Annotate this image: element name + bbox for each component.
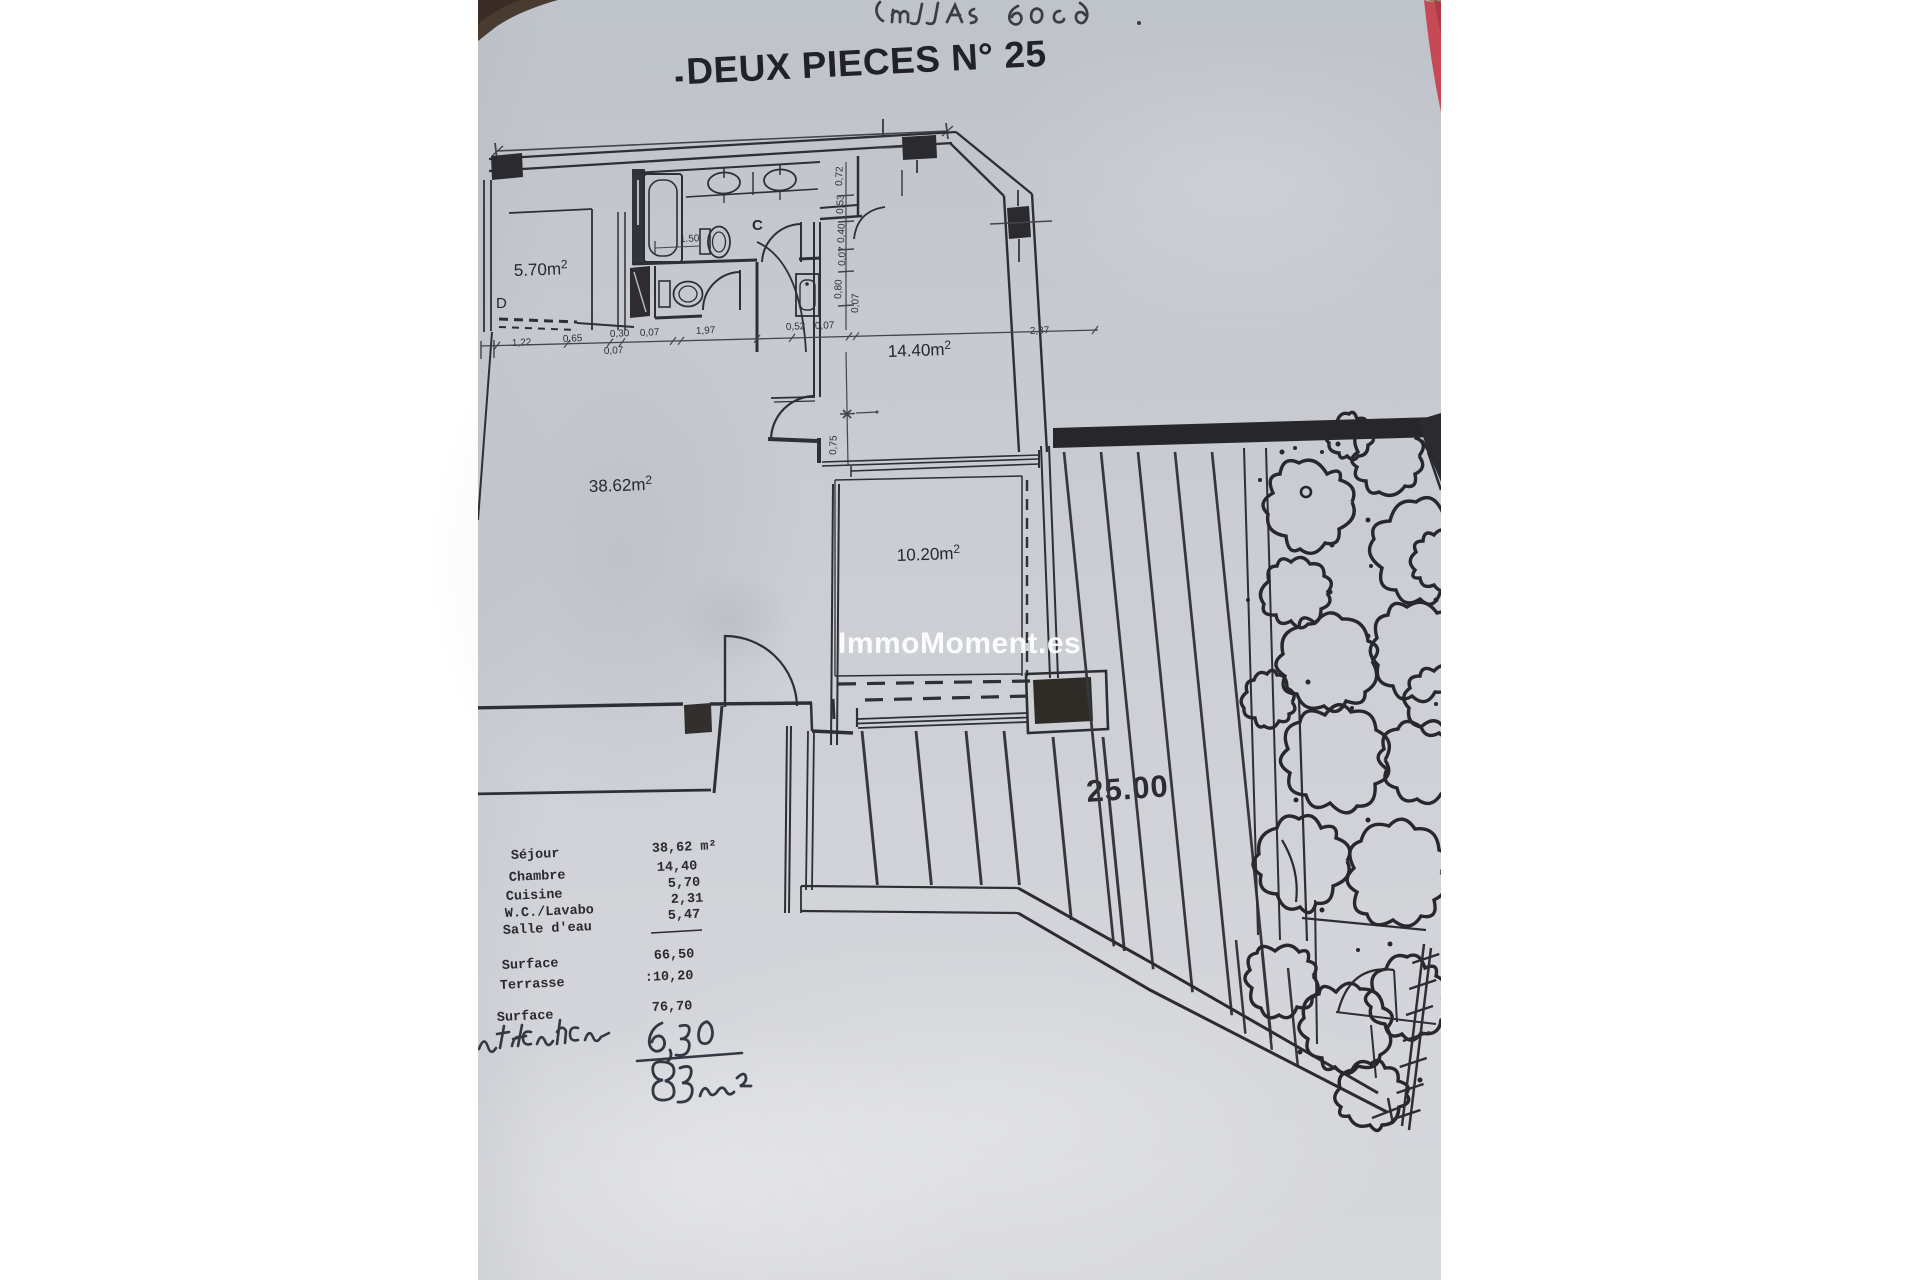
svg-text:0,75: 0,75	[828, 435, 840, 455]
svg-text:10.20m2: 10.20m2	[896, 542, 960, 565]
svg-text:0,07: 0,07	[640, 327, 660, 339]
svg-text:0,65: 0,65	[563, 333, 583, 345]
svg-text:66,50: 66,50	[654, 947, 695, 964]
svg-text:0,07: 0,07	[850, 293, 862, 313]
svg-text:0,53: 0,53	[835, 194, 847, 214]
svg-text:5,70: 5,70	[668, 876, 701, 892]
svg-text:5,47: 5,47	[668, 908, 701, 924]
svg-text:5.70m2: 5.70m2	[513, 257, 568, 280]
svg-text:0,07: 0,07	[604, 345, 624, 357]
svg-text:76,70: 76,70	[652, 999, 693, 1016]
svg-text:ImmoMoment.es: ImmoMoment.es	[838, 627, 1081, 660]
svg-text:0,40: 0,40	[836, 223, 848, 243]
svg-text:Surface: Surface	[502, 957, 559, 974]
svg-text:Séjour: Séjour	[511, 847, 560, 864]
svg-text:Terrasse: Terrasse	[500, 976, 565, 994]
svg-text:D: D	[496, 295, 507, 312]
svg-text:38.62m2: 38.62m2	[588, 473, 652, 496]
svg-text:1.50: 1.50	[680, 233, 700, 245]
svg-text:0,72: 0,72	[834, 166, 846, 186]
svg-text:14,40: 14,40	[657, 859, 698, 876]
svg-text:2,87: 2,87	[1030, 325, 1050, 337]
svg-text::10,20: :10,20	[645, 969, 694, 986]
svg-text:0,07: 0,07	[815, 320, 835, 332]
svg-text:1,97: 1,97	[696, 325, 716, 337]
svg-text:2,31: 2,31	[671, 892, 704, 908]
svg-text:Chambre: Chambre	[509, 869, 566, 886]
svg-text:0,52: 0,52	[786, 321, 806, 333]
svg-text:38,62 m²: 38,62 m²	[652, 839, 717, 857]
svg-text:Surface: Surface	[497, 1009, 554, 1026]
svg-text:1,22: 1,22	[512, 337, 532, 349]
svg-text:Cuisine: Cuisine	[506, 888, 563, 905]
svg-text:0,80: 0,80	[833, 279, 845, 299]
svg-text:14.40m2: 14.40m2	[887, 338, 951, 361]
svg-text:0,30: 0,30	[610, 328, 630, 340]
svg-text:C: C	[752, 217, 763, 234]
